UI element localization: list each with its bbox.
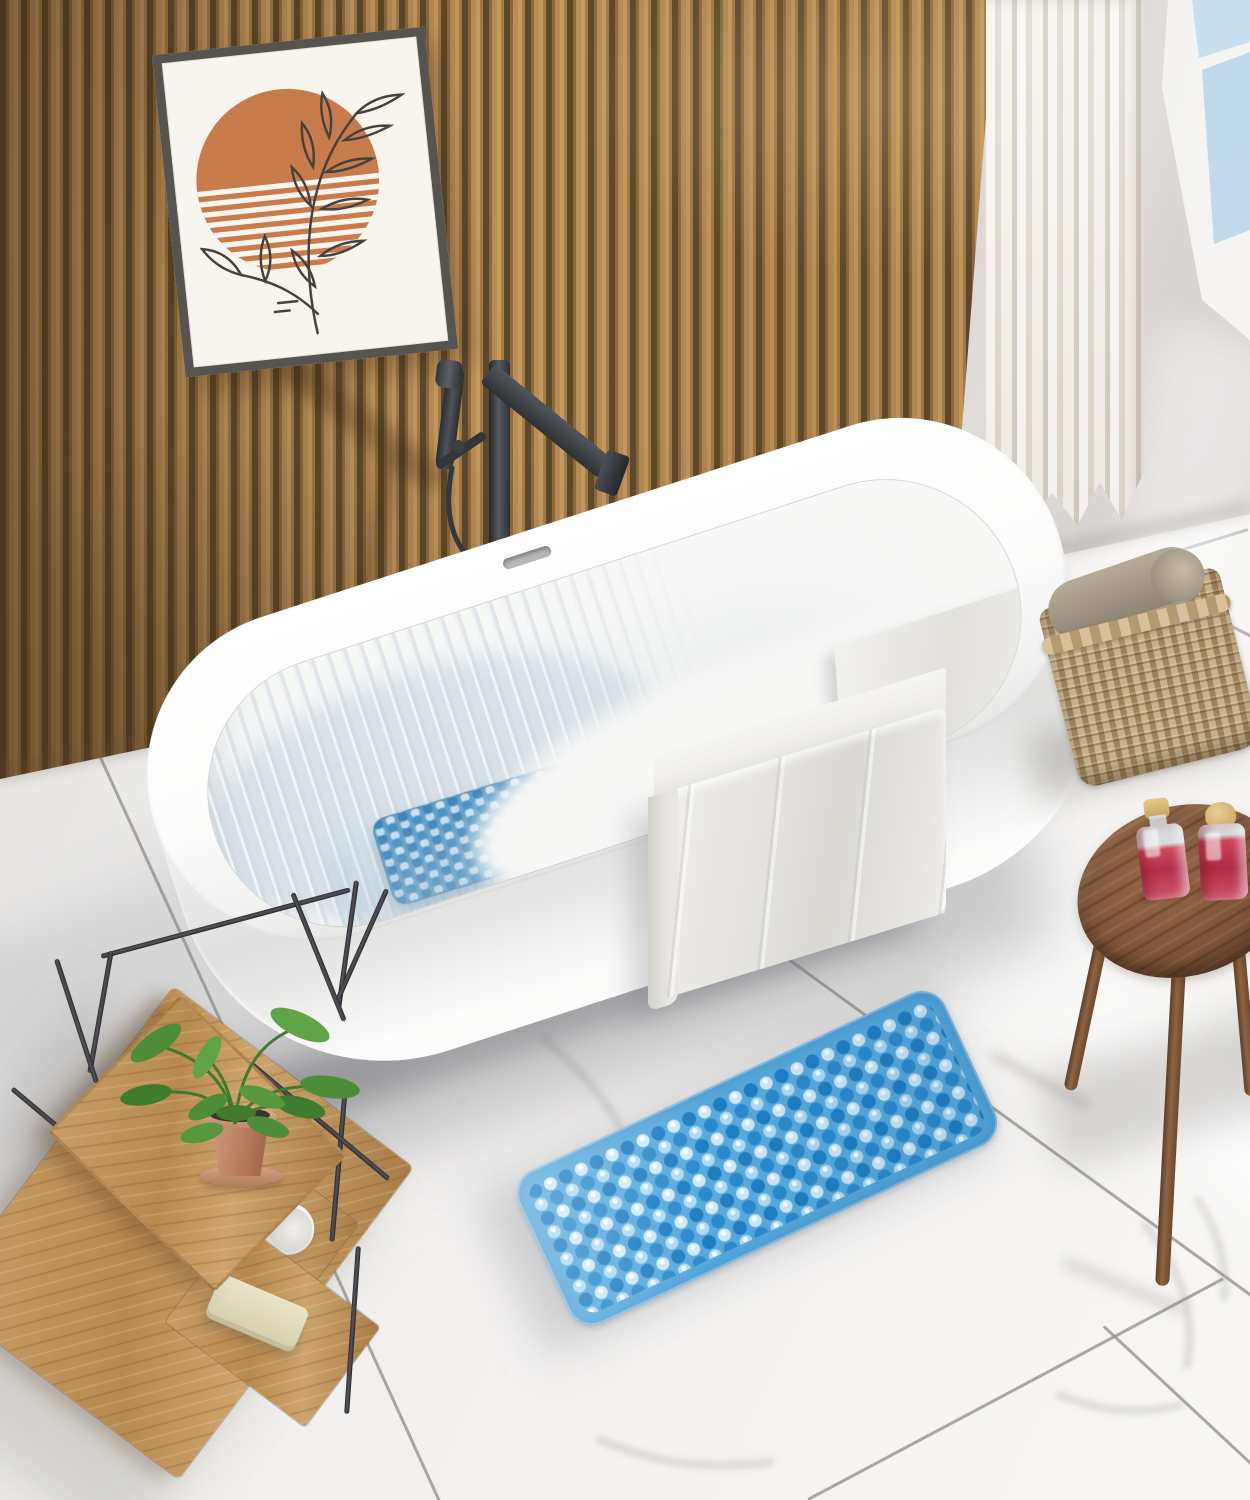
line-art-print bbox=[162, 36, 449, 367]
hand-sprayer-head bbox=[434, 359, 463, 390]
picture-frame bbox=[152, 27, 458, 378]
faucet-handle-knob bbox=[452, 440, 465, 453]
bottle-label bbox=[1143, 828, 1161, 858]
bathroom-scene bbox=[0, 0, 1250, 1500]
plant-leaves bbox=[119, 1001, 362, 1148]
toiletry-bottle bbox=[1196, 801, 1248, 901]
potted-plant bbox=[90, 975, 380, 1225]
bottle-label bbox=[1205, 832, 1221, 861]
